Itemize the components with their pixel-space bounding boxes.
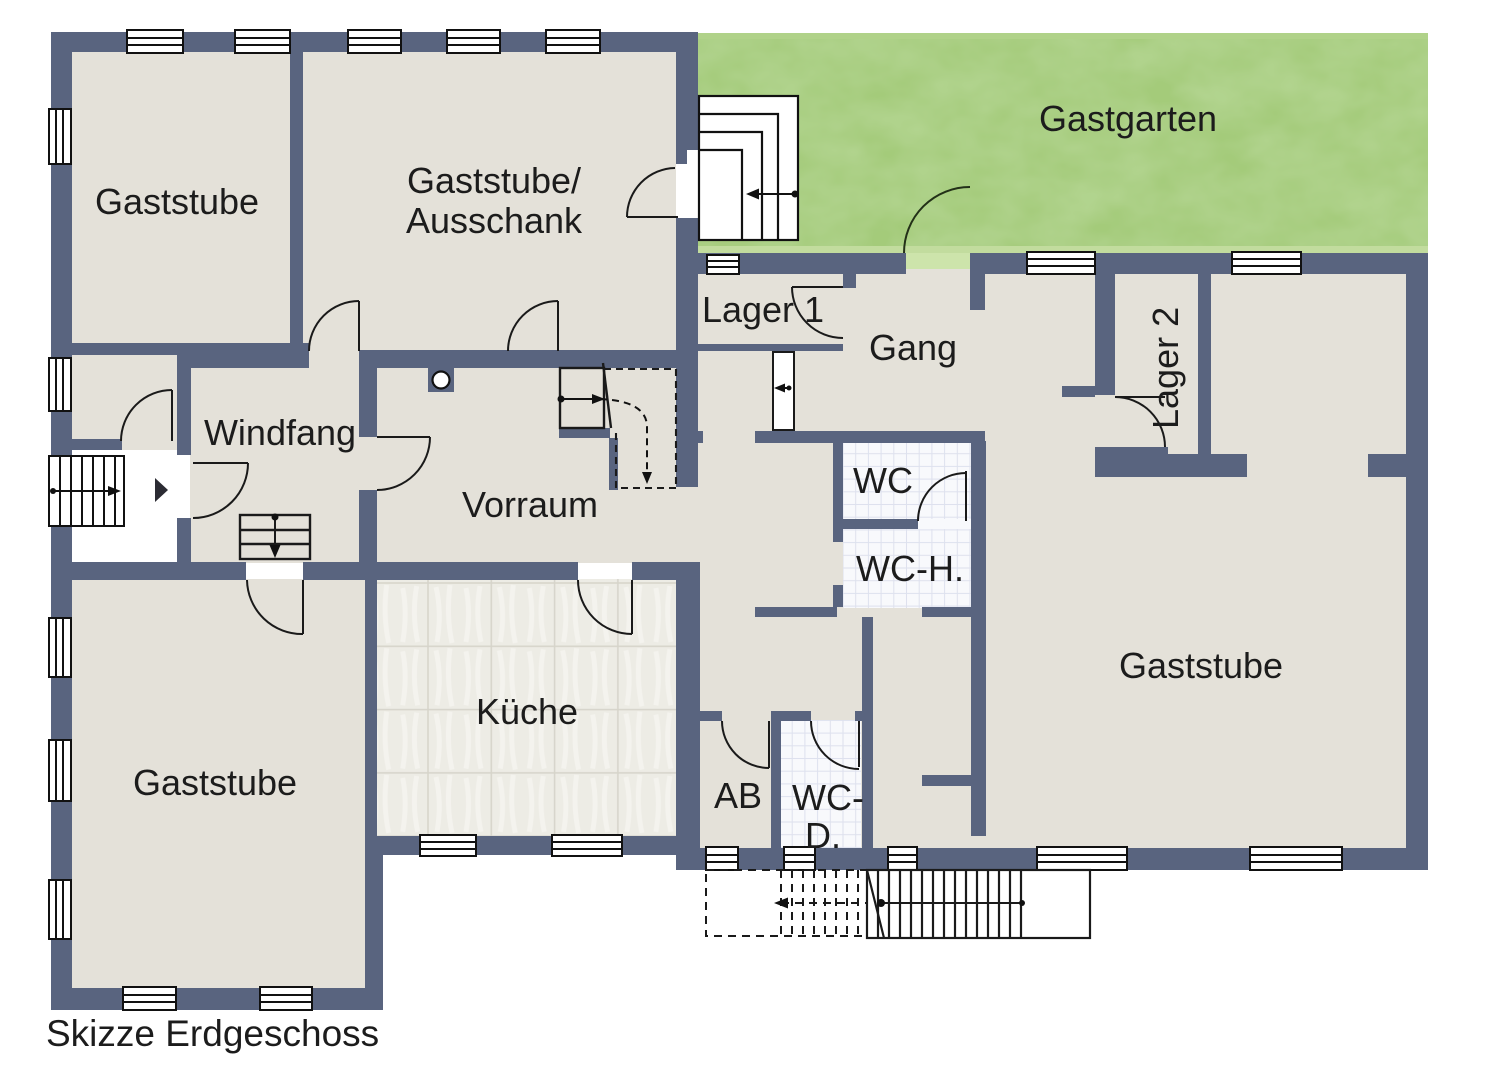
svg-text:WC-H.: WC-H. (856, 548, 964, 589)
svg-text:Lager 1: Lager 1 (702, 289, 824, 330)
svg-text:Lager 2: Lager 2 (1145, 307, 1186, 429)
svg-text:Gaststube/: Gaststube/ (407, 160, 581, 201)
svg-text:Gastgarten: Gastgarten (1039, 98, 1217, 139)
svg-text:Vorraum: Vorraum (462, 484, 598, 525)
svg-text:Skizze Erdgeschoss: Skizze Erdgeschoss (46, 1013, 379, 1054)
svg-text:Gang: Gang (869, 327, 957, 368)
svg-text:D.: D. (805, 815, 841, 856)
svg-text:AB: AB (714, 775, 762, 816)
svg-text:Gaststube: Gaststube (1119, 645, 1283, 686)
svg-text:Windfang: Windfang (204, 412, 356, 453)
svg-text:Gaststube: Gaststube (95, 181, 259, 222)
svg-text:Küche: Küche (476, 691, 578, 732)
svg-text:WC-: WC- (792, 777, 864, 818)
svg-text:Gaststube: Gaststube (133, 762, 297, 803)
svg-text:WC: WC (853, 460, 913, 501)
svg-text:Ausschank: Ausschank (406, 200, 583, 241)
